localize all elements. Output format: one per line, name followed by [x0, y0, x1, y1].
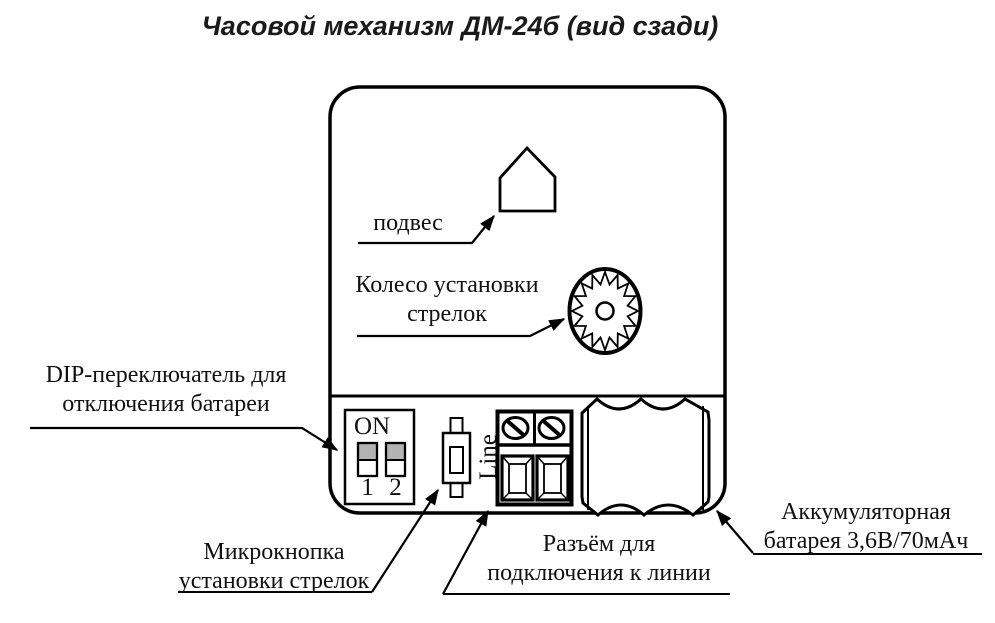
- dip-leader-arrow: [30, 428, 337, 450]
- line-terminal-label: Line: [475, 427, 497, 487]
- dip-switch-2-number: 2: [386, 474, 405, 502]
- microbutton-body: [443, 433, 470, 483]
- hanger-label: подвес: [338, 209, 478, 238]
- battery-outline: [582, 399, 709, 515]
- connector-label: Разъём для подключения к линии: [479, 530, 719, 588]
- wheel-hub: [597, 303, 614, 320]
- hands-setting-wheel-icon: [570, 269, 641, 353]
- dip-switch-1-number: 1: [358, 474, 377, 502]
- line-terminal-block-icon: [498, 412, 572, 505]
- dip-switch-1-slider: [358, 443, 377, 460]
- battery-label: Аккумуляторная батарея 3,6В/70мАч: [746, 498, 986, 556]
- dip-switch-2-slider: [386, 443, 405, 460]
- battery-icon: [582, 399, 709, 515]
- setting-wheel-label: Колесо установки стрелок: [347, 271, 547, 329]
- dip-on-label: ON: [352, 413, 392, 441]
- dip-switch-label: DIP-переключатель для отключения батареи: [36, 361, 296, 419]
- microbutton-label: Микрокнопка установки стрелок: [174, 538, 374, 596]
- diagram-canvas: Часовой механизм ДМ-24б (вид сзади): [0, 0, 995, 623]
